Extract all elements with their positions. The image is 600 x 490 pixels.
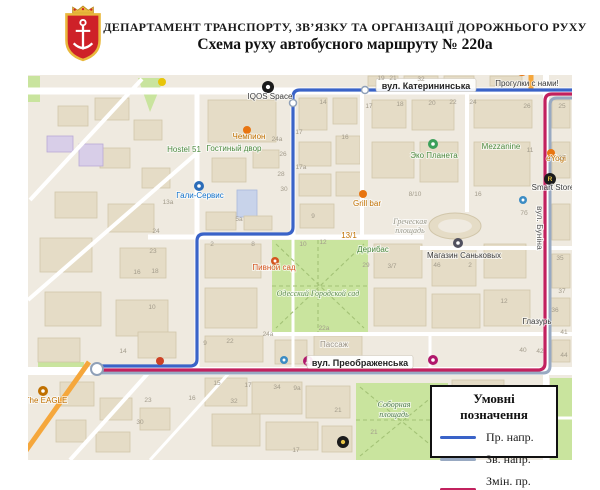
house-number: 2 [468,262,472,269]
house-number: 37 [558,288,566,295]
house-number: 17 [292,447,300,454]
house-number: 25 [558,103,566,110]
poi-label: Глазурь [522,317,551,326]
house-number: 16 [474,191,482,198]
legend-swatch-forward [440,436,476,439]
house-number: 40 [519,347,527,354]
info-icon [283,359,286,362]
house-number: 23 [144,397,152,404]
building [56,420,86,442]
header-department-line: ДЕПАРТАМЕНТ ТРАНСПОРТУ, ЗВ’ЯЗКУ ТА ОРГАН… [100,20,590,35]
legend-label-changed: Змін. пр. напр. [486,474,548,490]
house-number: 8 [251,241,255,248]
poi-label: 13/1 [341,231,357,240]
building [212,414,260,446]
building [237,190,257,217]
house-number: 22а [319,325,330,332]
building [100,148,130,168]
house-number: 26 [279,151,287,158]
house-number: 29 [362,262,370,269]
poi-label: Чемпион [233,132,266,141]
poi-label: IQOS Space [248,92,293,101]
poi-label: The EAGLE [25,396,68,405]
house-number: 32 [417,76,425,83]
house-number: 9 [311,213,315,220]
house-number: 16 [188,395,196,402]
house-number: 30 [280,186,288,193]
house-number: 35 [556,255,564,262]
house-number: 27 [558,155,566,162]
house-number: 15 [213,380,221,387]
house-number: 17 [365,103,373,110]
legend-title: Умовні позначення [440,391,548,423]
poi-label: Греческая [392,217,427,226]
building [205,244,261,278]
building [79,144,103,166]
house-number: 14 [319,99,327,106]
building [116,300,168,336]
restaurant-icon [359,190,367,198]
poi-label: Прогулки с нами! [495,79,559,88]
building [299,174,331,196]
poi-label: Одесский Городской сад [277,289,360,298]
poi-label: Магазин Саньковых [427,251,501,260]
building [374,288,426,326]
building [372,142,414,178]
street-label-vertical: вул. Буніна [535,206,545,250]
house-number: 17 [295,129,303,136]
building [120,248,166,278]
house-number: 41 [560,329,568,336]
building [420,142,458,182]
building [96,432,130,452]
house-number: 44 [560,352,568,359]
building [140,408,170,430]
house-number: 21 [334,407,342,414]
poi-label: площадь [379,410,409,419]
house-number: 24 [152,228,160,235]
building [45,292,101,326]
house-number: 21 [370,429,378,436]
street-label: вул. Катерининська [382,81,471,91]
building [205,288,257,328]
building [138,332,176,358]
page: ДЕПАРТАМЕНТ ТРАНСПОРТУ, ЗВ’ЯЗКУ ТА ОРГАН… [0,0,600,490]
route-waypoint [362,87,369,94]
round-building-court [438,219,472,233]
house-number: 14 [119,348,127,355]
poi-label: Пассаж [320,340,349,349]
house-number: 8/10 [409,191,422,198]
poi-icon [156,357,164,365]
poi-label: Гостиный двор [207,144,263,153]
house-number: 23 [149,248,157,255]
info-icon [522,199,525,202]
building [47,136,73,152]
poi-label: Пивной сад [252,263,295,272]
cafe-icon [41,389,45,393]
house-number: 24 [469,99,477,106]
building [134,120,162,140]
map-legend: Умовні позначення Пр. напр. Зв. напр. Зм… [430,385,558,458]
building [275,340,307,364]
legend-swatch-return [440,458,476,461]
building [432,294,480,328]
building [336,172,362,196]
building [306,386,350,418]
legend-row-return: Зв. напр. [440,452,548,467]
legend-row-changed: Змін. пр. напр. [440,474,548,490]
eco-planeta-icon [431,142,435,146]
house-number: 42 [536,348,544,355]
house-number: 26 [523,103,531,110]
gali-service-icon [197,184,201,188]
header: ДЕПАРТАМЕНТ ТРАНСПОРТУ, ЗВ’ЯЗКУ ТА ОРГАН… [0,0,600,75]
house-number: 22 [226,338,234,345]
poi-label: Гали-Сервис [176,191,224,200]
house-number: 18 [151,268,159,275]
house-number: 13а [163,199,174,206]
house-number: 21 [389,75,397,82]
building [333,98,357,124]
building [300,204,334,228]
poi-label: площадь [395,226,425,235]
building [266,422,318,450]
house-number: 10 [148,304,156,311]
building [55,192,97,218]
building [244,216,272,230]
house-number: 20 [428,100,436,107]
sankovy-store-icon [456,241,460,245]
house-number: 17 [244,382,252,389]
house-number: 3/7 [387,263,396,270]
building [552,204,570,240]
house-number: 34 [273,384,281,391]
house-number: 28 [277,171,285,178]
house-number: 16 [133,269,141,276]
house-number: 12 [500,298,508,305]
house-number: 7б [520,209,528,217]
house-number: 24а [263,331,274,338]
poi-icon [341,440,345,444]
building [206,212,236,230]
header-route-title: Схема руху автобусного маршруту № 220а [100,36,590,54]
building [58,106,88,126]
poi-label: Соборная [378,400,411,409]
house-number: 32 [230,398,238,405]
legend-label-return: Зв. напр. [486,452,531,467]
house-number: 24а [272,136,283,143]
house-number: 17а [296,164,307,171]
legend-label-forward: Пр. напр. [486,430,534,445]
poi-icon [158,78,166,86]
iqos-space-icon [266,85,270,89]
house-number: 9а [293,385,301,392]
legend-row-forward: Пр. напр. [440,430,548,445]
house-number: 2 [210,241,214,248]
bus-stop-icon [431,358,435,362]
house-number: 30 [136,419,144,426]
poi-label: Grill bar [353,199,381,208]
beer-garden-icon [274,260,277,263]
poi-label: Эко Планета [410,151,458,160]
house-number: 16 [341,134,349,141]
house-number: 19 [377,75,385,82]
house-number: 12 [319,239,327,246]
building [299,142,331,166]
house-number: 5а [235,216,243,223]
house-number: 11 [527,147,534,154]
house-number: 46 [433,262,441,269]
house-number: 22 [449,99,457,106]
poi-label: Дерибас [357,245,389,254]
house-number: 36 [551,307,559,314]
building [205,336,263,362]
building [38,338,80,362]
poi-label: Hostel 51 [167,145,201,154]
house-number: 18 [396,101,404,108]
house-number: 10 [299,241,307,248]
building [212,158,246,182]
street-label: вул. Преображенська [312,358,409,368]
house-number: 9 [203,340,207,347]
route-terminus [91,363,103,375]
poi-label: Smart Store [532,183,575,192]
smart-store-icon: R [548,176,553,183]
poi-label: Mezzanine [482,142,521,151]
